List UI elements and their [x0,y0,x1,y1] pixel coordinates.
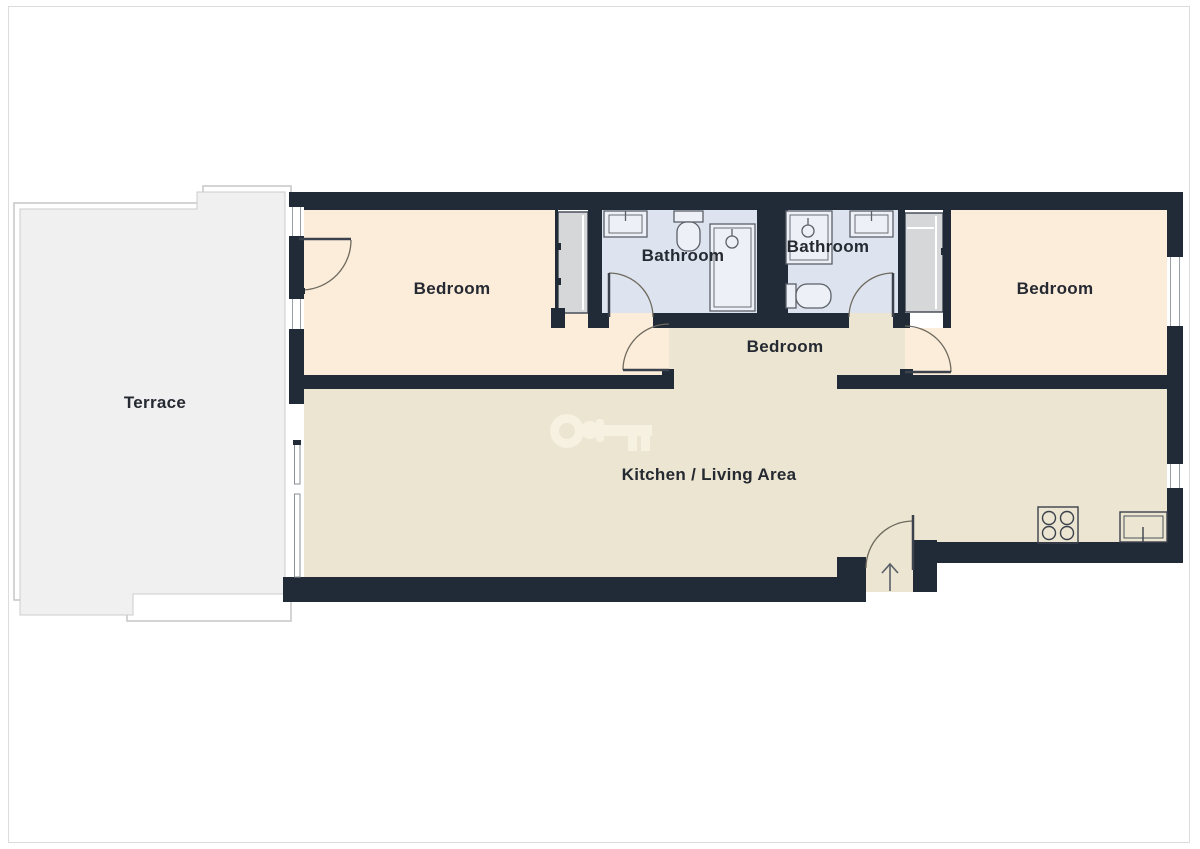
sink-icon [850,211,893,237]
wall-mid-right-segment [837,375,1167,389]
wall-mid-left-segment [289,375,674,389]
wall-bath-bottom-b [653,313,757,328]
wall-closet-left-partition [555,210,558,313]
window-left-sidelight [289,207,304,236]
floorplan-page: Terrace Bedroom Bathroom Bathroom Bedroo… [0,0,1200,849]
room-label-terrace: Terrace [124,393,186,413]
bedroom-left-closet-gap [565,313,588,328]
glass-door-terrace [289,404,304,577]
wall-top [292,192,1167,210]
middle-opening-floor [674,375,837,389]
toilet-icon [786,284,831,308]
room-label-kitchen-living: Kitchen / Living Area [622,465,797,485]
wall-closet-right-west [898,192,905,328]
bedroom-left-alcove-floor [551,328,669,375]
wall-closet-left-stub [551,308,565,328]
wall-entry-jamb-right [913,540,937,592]
window-right-kitchen [1167,464,1183,488]
wall-closet-right-east [943,192,951,328]
bedroom-right-alcove-floor [905,328,951,375]
bathroom-right-threshold [849,313,893,328]
wall-mid-left-stub [662,369,674,389]
toilet-icon [674,211,703,251]
wall-entry-jamb-left [837,557,866,602]
window-left-bedroom [289,299,304,329]
wall-between-bathrooms [757,192,788,328]
wall-right [1167,192,1183,563]
sink-icon [604,211,647,237]
room-label-bedroom-middle: Bedroom [747,337,824,357]
room-label-bathroom-left: Bathroom [642,246,725,266]
wall-bottom-right [937,542,1183,563]
room-label-bathroom-right: Bathroom [787,237,870,257]
floorplan-drawing [0,0,1200,849]
shower-icon [710,224,755,311]
bathroom-left-threshold [609,313,653,328]
room-label-bedroom-right: Bedroom [1017,279,1094,299]
wall-bottom-left [283,577,837,602]
room-label-bedroom-left: Bedroom [414,279,491,299]
wall-bath-bottom-c [788,313,849,328]
window-right-bedroom [1167,257,1183,326]
wall-bath-left-west [588,192,602,328]
